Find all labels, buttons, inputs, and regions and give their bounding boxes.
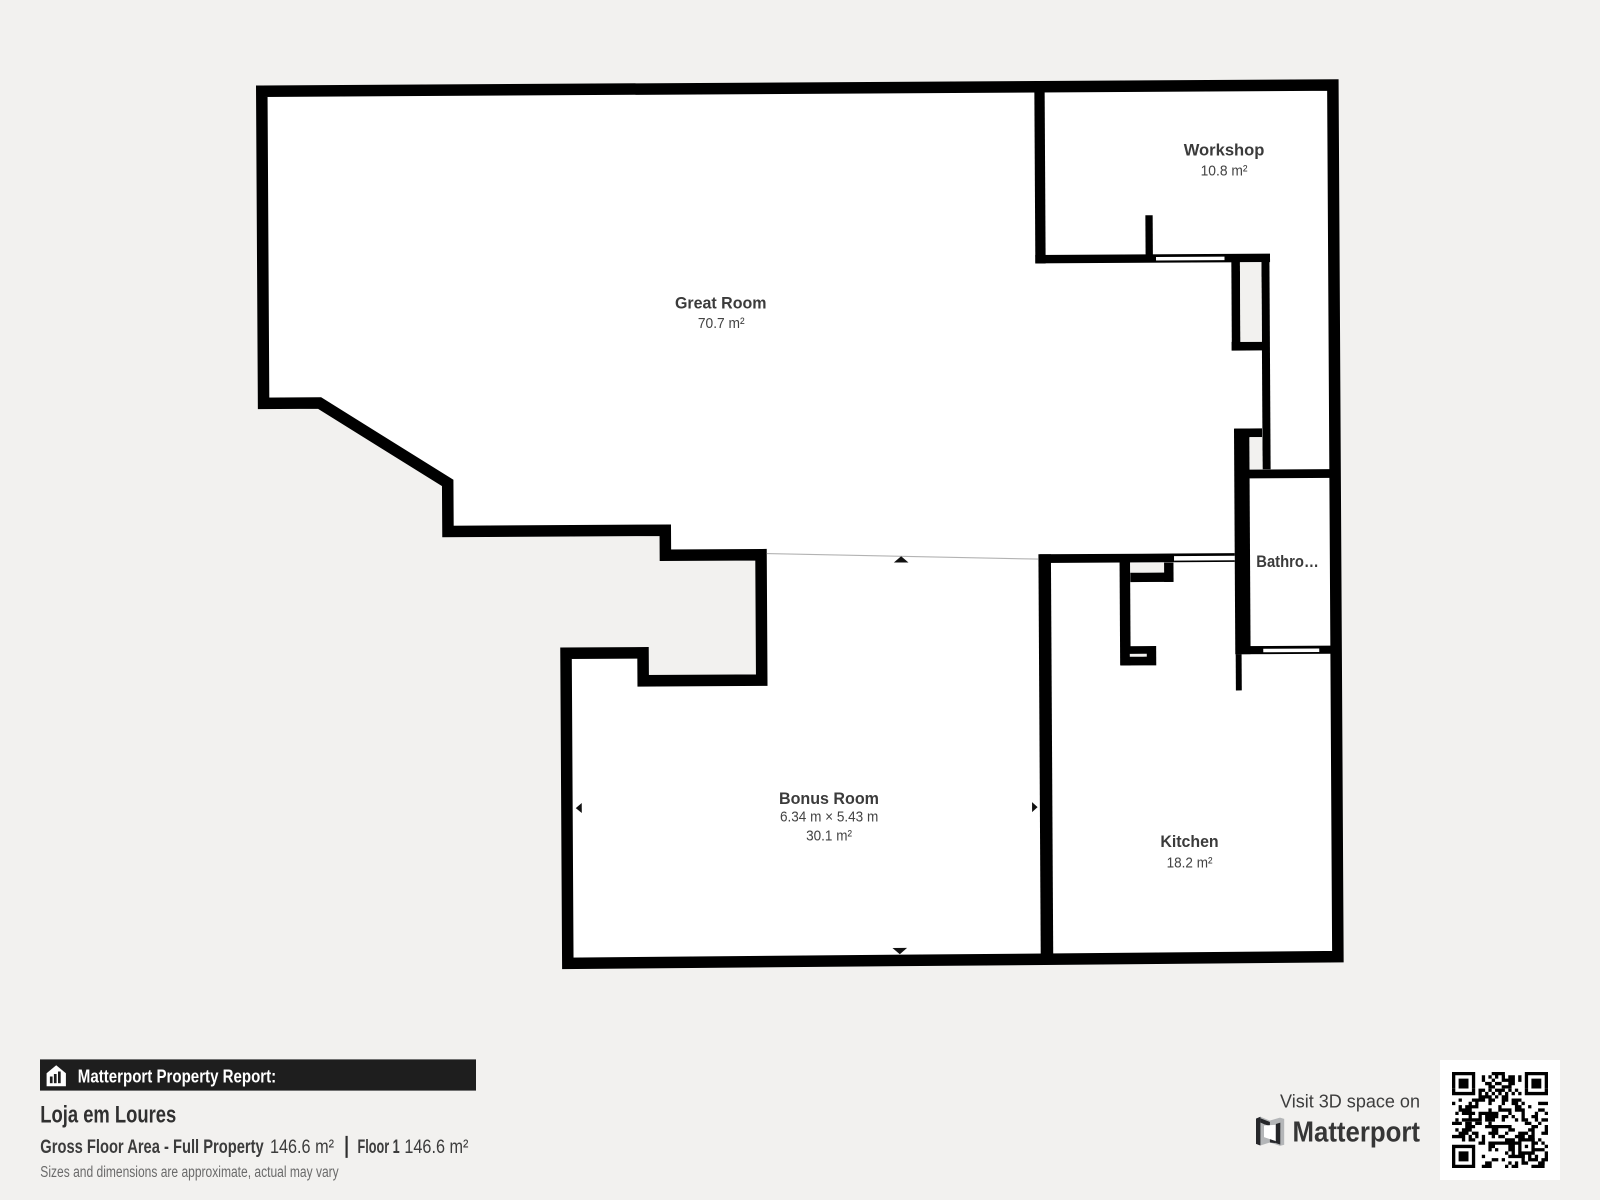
svg-text:Great Room: Great Room — [675, 295, 767, 313]
svg-text:Sizes and dimensions are appro: Sizes and dimensions are approximate, ac… — [40, 1164, 339, 1181]
svg-text:Bonus Room: Bonus Room — [779, 790, 879, 808]
svg-text:6.34 m × 5.43 m: 6.34 m × 5.43 m — [780, 808, 878, 825]
svg-text:146.6 m²: 146.6 m² — [270, 1137, 335, 1158]
svg-text:146.6 m²: 146.6 m² — [404, 1137, 469, 1158]
svg-text:10.8 m²: 10.8 m² — [1201, 162, 1248, 179]
svg-text:Bathro…: Bathro… — [1256, 553, 1319, 571]
svg-text:70.7 m²: 70.7 m² — [698, 315, 745, 332]
svg-text:Matterport Property Report:: Matterport Property Report: — [78, 1067, 276, 1087]
svg-text:Visit 3D space on: Visit 3D space on — [1280, 1090, 1420, 1111]
svg-text:Workshop: Workshop — [1184, 142, 1265, 160]
svg-text:Matterport: Matterport — [1292, 1116, 1420, 1148]
svg-text:Gross Floor Area - Full Proper: Gross Floor Area - Full Property — [40, 1137, 264, 1158]
svg-text:Loja em Loures: Loja em Loures — [40, 1101, 176, 1128]
svg-text:30.1 m²: 30.1 m² — [806, 827, 852, 844]
svg-text:Floor 1: Floor 1 — [357, 1137, 399, 1158]
svg-text:18.2 m²: 18.2 m² — [1167, 854, 1213, 871]
svg-text:Kitchen: Kitchen — [1160, 833, 1218, 851]
